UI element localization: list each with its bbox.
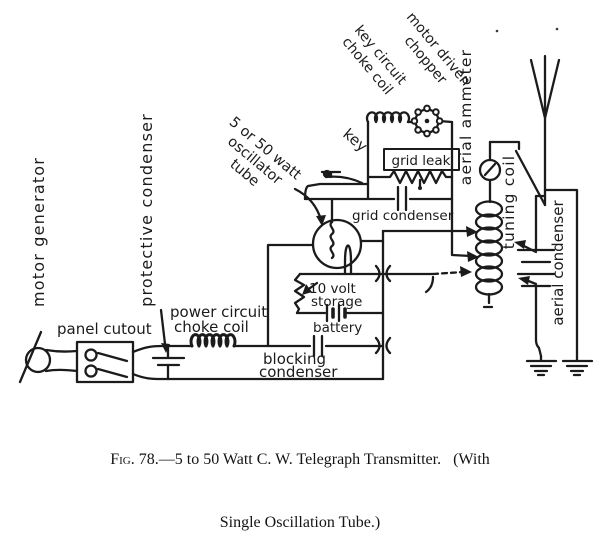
telegraph-key-symbol [305, 171, 368, 199]
label-grid-condenser: grid condenser [352, 208, 454, 224]
motor-generator-symbol [20, 332, 77, 382]
ground-symbol [563, 361, 592, 375]
label-battery-line2: storage [311, 294, 362, 310]
label-aerial-ammeter: aerial ammeter [457, 49, 475, 185]
aerial-ammeter-symbol [480, 142, 500, 202]
caption-line-2: Single Oscillation Tube.) [0, 512, 600, 533]
label-motor-generator: motor generator [29, 157, 48, 307]
label-protective-condenser: protective condenser [137, 113, 156, 307]
panel-cutout-box [77, 342, 133, 382]
ground-symbol [527, 356, 556, 375]
fig-number: Fig. [110, 451, 135, 468]
label-key-choke: key circuit choke coil [338, 23, 410, 100]
caption-line-1: Fig. 78.—5 to 50 Watt C. W. Telegraph Tr… [0, 449, 600, 470]
antenna-symbol [531, 56, 559, 205]
label-oscillator-tube: 5 or 50 watt oscillator tube [205, 114, 304, 208]
label-aerial-condenser: aerial condenser [549, 200, 567, 326]
label-key: key [339, 125, 371, 156]
circuit-diagram: motor generator protective condenser pan… [0, 0, 600, 406]
label-panel-cutout: panel cutout [57, 320, 152, 338]
power-choke-coil-symbol [191, 335, 235, 346]
figure-caption: Fig. 78.—5 to 50 Watt C. W. Telegraph Tr… [0, 407, 600, 554]
label-blocking-condenser-line2: condenser [259, 363, 338, 381]
grid-condenser-symbol [398, 187, 406, 210]
label-battery-line3: battery [313, 320, 362, 336]
label-tuning-coil: tuning coil [500, 155, 518, 249]
print-specks [496, 28, 559, 33]
chopper-wheel-symbol [412, 106, 452, 137]
key-choke-coil-symbol [367, 112, 415, 122]
oscillator-tube-symbol [295, 189, 361, 274]
tuning-coil-symbol [476, 202, 502, 308]
label-power-choke-line2: choke coil [174, 318, 249, 336]
label-grid-leak: grid leak [392, 153, 451, 169]
